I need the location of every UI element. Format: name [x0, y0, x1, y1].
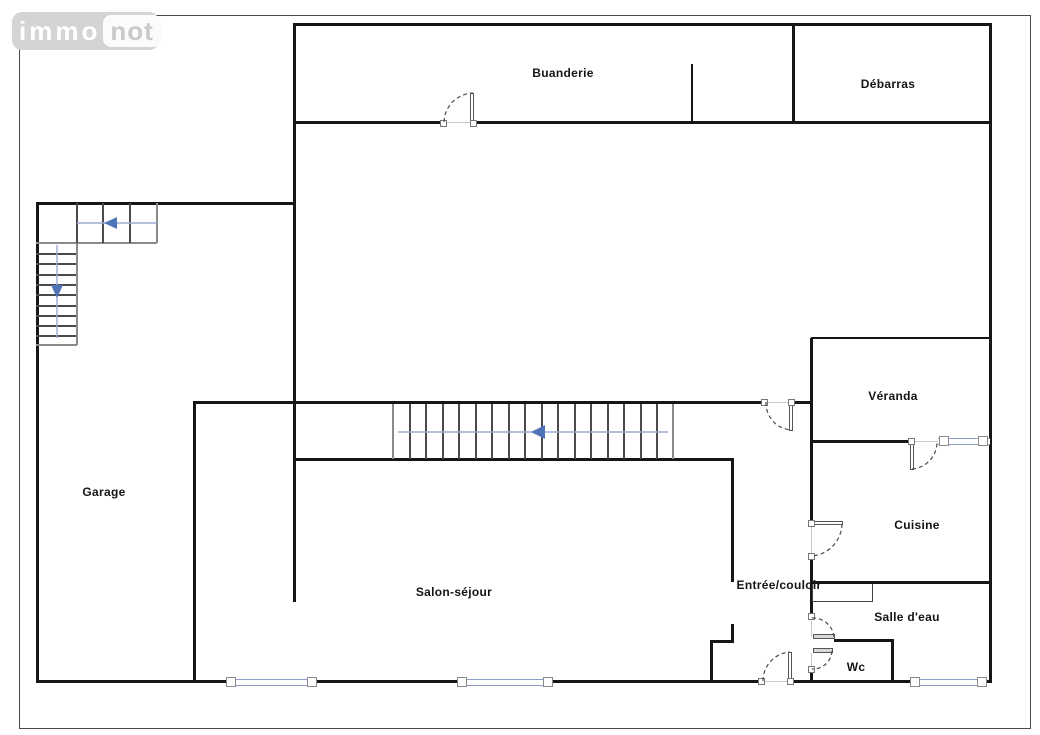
stair-direction-arrows — [51, 217, 668, 439]
floor-plan: Buanderie Débarras Garage Véranda Cuisin… — [0, 0, 1040, 735]
door-arc — [444, 93, 473, 122]
stair-arrow-down-icon — [51, 285, 63, 298]
door-arc — [812, 618, 834, 637]
stair-arrow-left-icon — [531, 425, 545, 439]
door-swing-arcs — [444, 93, 937, 681]
door-arc — [812, 651, 832, 669]
door-arc — [812, 524, 842, 556]
stair-arrow-left-icon — [104, 217, 117, 229]
door-arc — [763, 652, 790, 681]
symbols-overlay — [0, 0, 1040, 735]
logo-not-text: not — [110, 18, 153, 44]
door-arc — [912, 442, 937, 469]
immonot-logo: immo not — [12, 12, 159, 50]
door-arc — [766, 402, 792, 430]
logo-not-box: not — [103, 15, 160, 47]
logo-immo-text: immo — [19, 18, 100, 44]
